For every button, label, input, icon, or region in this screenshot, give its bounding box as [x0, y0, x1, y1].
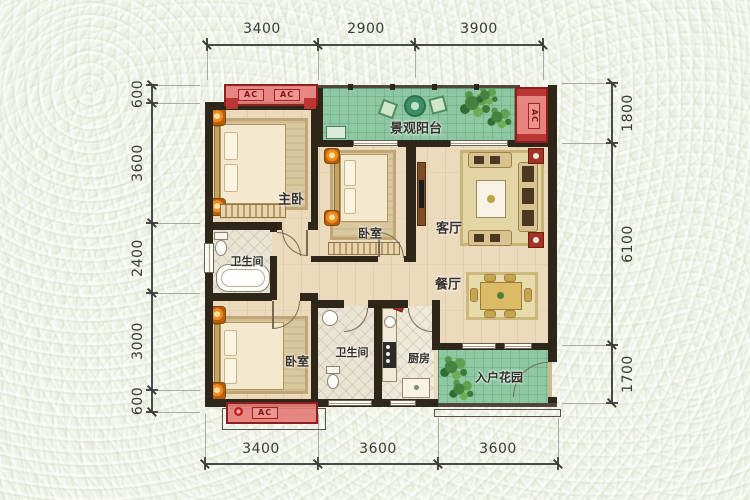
- ac-platform-end: [517, 134, 546, 141]
- wall: [406, 140, 416, 262]
- dining-chair: [504, 310, 516, 318]
- garden-railing: [438, 403, 557, 407]
- dim-left-5: 600: [130, 387, 146, 415]
- balcony-cabinet-icon: [326, 126, 346, 139]
- tv-icon: [419, 180, 424, 208]
- room-label-dining: 餐厅: [435, 274, 461, 293]
- room-label-living: 客厅: [436, 218, 462, 237]
- pillow-icon: [224, 358, 237, 384]
- ac-label: AC: [238, 89, 264, 101]
- toilet-icon: [215, 240, 227, 256]
- floor-plan: 3400 2900 3900 3400 3600 3600 600 3600 2…: [0, 0, 750, 500]
- room-label-bathroom-lower: 卫生间: [336, 344, 369, 360]
- table-decor: [487, 195, 495, 203]
- wall: [318, 140, 353, 147]
- balcony-table-icon: [404, 95, 426, 117]
- railing-post: [390, 84, 395, 90]
- extension-line: [558, 418, 559, 460]
- window: [462, 343, 496, 349]
- wall: [404, 256, 416, 262]
- room-label-balcony: 景观阳台: [390, 118, 442, 137]
- toilet-icon: [326, 366, 340, 374]
- extension-line: [158, 223, 200, 224]
- room-label-kitchen: 厨房: [408, 350, 430, 366]
- dining-chair: [470, 288, 478, 302]
- extension-line: [562, 403, 608, 404]
- extension-line: [158, 390, 200, 391]
- railing-post: [474, 84, 479, 90]
- plant-icon: [480, 90, 490, 100]
- dining-chair: [504, 274, 516, 282]
- wall: [374, 300, 382, 399]
- extension-line: [158, 293, 200, 294]
- wall: [318, 85, 323, 140]
- dim-bottom-3: 3600: [479, 441, 517, 457]
- wall: [308, 222, 318, 230]
- wall: [318, 300, 344, 308]
- pillow-icon: [224, 132, 238, 160]
- room-label-master-bedroom: 主卧: [278, 189, 304, 208]
- dim-top-1: 3400: [243, 21, 281, 37]
- dim-left-1: 600: [130, 80, 146, 108]
- toilet-icon: [214, 232, 228, 240]
- sofa-cushion: [474, 156, 484, 164]
- wall: [311, 102, 318, 230]
- sofa-cushion: [522, 210, 534, 226]
- sofa-cushion: [522, 188, 534, 204]
- window: [353, 140, 398, 146]
- extension-line: [205, 414, 206, 460]
- ac-platform-end: [226, 98, 238, 109]
- wall: [300, 293, 318, 301]
- extension-line: [207, 50, 208, 80]
- wall: [311, 293, 318, 407]
- wall: [205, 273, 213, 399]
- pillow-icon: [224, 164, 238, 192]
- wall: [205, 293, 272, 301]
- ac-platform-end: [304, 98, 316, 109]
- burner: [386, 359, 390, 363]
- dim-top-3: 3900: [460, 21, 498, 37]
- dimension-line-left: [151, 85, 153, 412]
- room-label-bedroom-lower: 卧室: [285, 353, 309, 370]
- extension-line: [158, 103, 200, 104]
- dim-left-4: 3000: [130, 322, 146, 360]
- extension-line: [438, 418, 439, 460]
- window: [504, 343, 532, 349]
- plant-icon: [465, 96, 479, 110]
- door-leaf: [272, 301, 274, 328]
- plant-icon: [491, 111, 502, 122]
- railing-post: [348, 84, 353, 90]
- dimension-line-right: [611, 83, 613, 403]
- pillow-icon: [344, 188, 356, 214]
- room-label-entry-garden: 入户花园: [475, 369, 523, 386]
- plant-icon: [445, 361, 458, 374]
- extension-line: [562, 345, 608, 346]
- sofa-cushion: [522, 166, 534, 182]
- ac-label: AC: [274, 89, 300, 101]
- extension-line: [562, 83, 608, 84]
- sofa-cushion: [490, 234, 500, 242]
- flower-icon: [234, 407, 243, 416]
- dimension-line-top: [207, 44, 543, 46]
- toilet-icon: [327, 374, 339, 389]
- sink-icon: [384, 316, 396, 328]
- lamp-icon: [324, 210, 340, 226]
- entry-door-leaf: [548, 362, 552, 397]
- extension-line: [543, 50, 544, 80]
- lamp-icon: [324, 148, 340, 164]
- dim-bottom-1: 3400: [242, 441, 280, 457]
- sofa-cushion: [474, 234, 484, 242]
- dining-chair: [524, 288, 532, 302]
- garden-step: [434, 409, 561, 417]
- dim-left-3: 2400: [130, 239, 146, 277]
- dim-left-2: 3600: [130, 144, 146, 182]
- extension-line: [318, 50, 319, 80]
- dim-right-2: 6100: [620, 225, 636, 263]
- window: [450, 140, 508, 146]
- dining-chair: [484, 310, 496, 318]
- ac-label: AC: [528, 103, 540, 129]
- extension-line: [158, 85, 200, 86]
- side-table-lamp: [533, 153, 539, 159]
- sofa-cushion: [490, 156, 500, 164]
- burner: [386, 352, 390, 356]
- burner: [386, 345, 390, 349]
- faucet: [414, 385, 419, 390]
- ac-label: AC: [252, 407, 278, 419]
- washbasin-icon: [322, 310, 338, 326]
- table-decor: [497, 292, 504, 299]
- wall: [270, 222, 277, 232]
- room-label-bathroom-main: 卫生间: [231, 253, 264, 269]
- plant-icon: [453, 383, 464, 394]
- dining-chair: [484, 274, 496, 282]
- extension-line: [415, 50, 416, 78]
- dim-bottom-2: 3600: [359, 441, 397, 457]
- extension-line: [158, 412, 200, 413]
- pillow-icon: [344, 160, 356, 186]
- dimension-line-bottom: [205, 463, 558, 465]
- dim-right-1: 1800: [620, 94, 636, 132]
- window: [204, 243, 214, 273]
- dim-top-2: 2900: [347, 21, 385, 37]
- dim-right-3: 1700: [620, 355, 636, 393]
- window: [328, 400, 372, 406]
- wall: [311, 256, 378, 262]
- extension-line: [562, 143, 608, 144]
- ac-platform-end: [517, 89, 546, 96]
- railing-post: [432, 84, 437, 90]
- wall: [548, 85, 557, 362]
- pillow-icon: [224, 330, 237, 356]
- wardrobe-icon: [220, 204, 286, 218]
- side-table-lamp: [533, 237, 539, 243]
- window: [390, 400, 416, 406]
- room-label-bedroom-mid: 卧室: [358, 225, 382, 242]
- door-leaf: [306, 230, 308, 256]
